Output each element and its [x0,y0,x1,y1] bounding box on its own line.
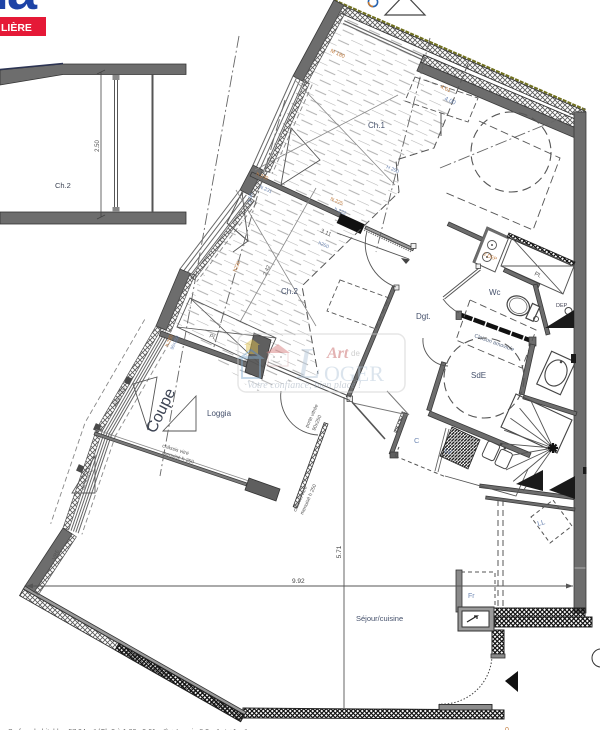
svg-text:Votre confiance, bien placé !: Votre confiance, bien placé ! [247,380,361,391]
svg-text:Fr: Fr [468,593,475,600]
svg-text:Séjour/cuisine: Séjour/cuisine [356,614,403,623]
svg-text:DEP: DEP [556,303,568,309]
svg-text:SdE: SdE [471,371,486,380]
svg-text:Wc: Wc [489,288,501,297]
svg-text:Ch.2: Ch.2 [55,181,71,190]
svg-text:de: de [351,349,360,358]
svg-text:Dgt.: Dgt. [416,312,431,321]
svg-text:5.71: 5.71 [336,545,343,558]
svg-text:C: C [414,436,420,445]
svg-text:2.50: 2.50 [95,140,101,152]
svg-text:Loggia: Loggia [207,409,232,418]
svg-text:9.92: 9.92 [292,578,305,585]
svg-text:Ch.2: Ch.2 [281,287,298,296]
svg-text:LIÈRE: LIÈRE [1,21,32,34]
svg-text:Art: Art [326,345,349,362]
svg-text:Ch.1: Ch.1 [368,121,385,130]
